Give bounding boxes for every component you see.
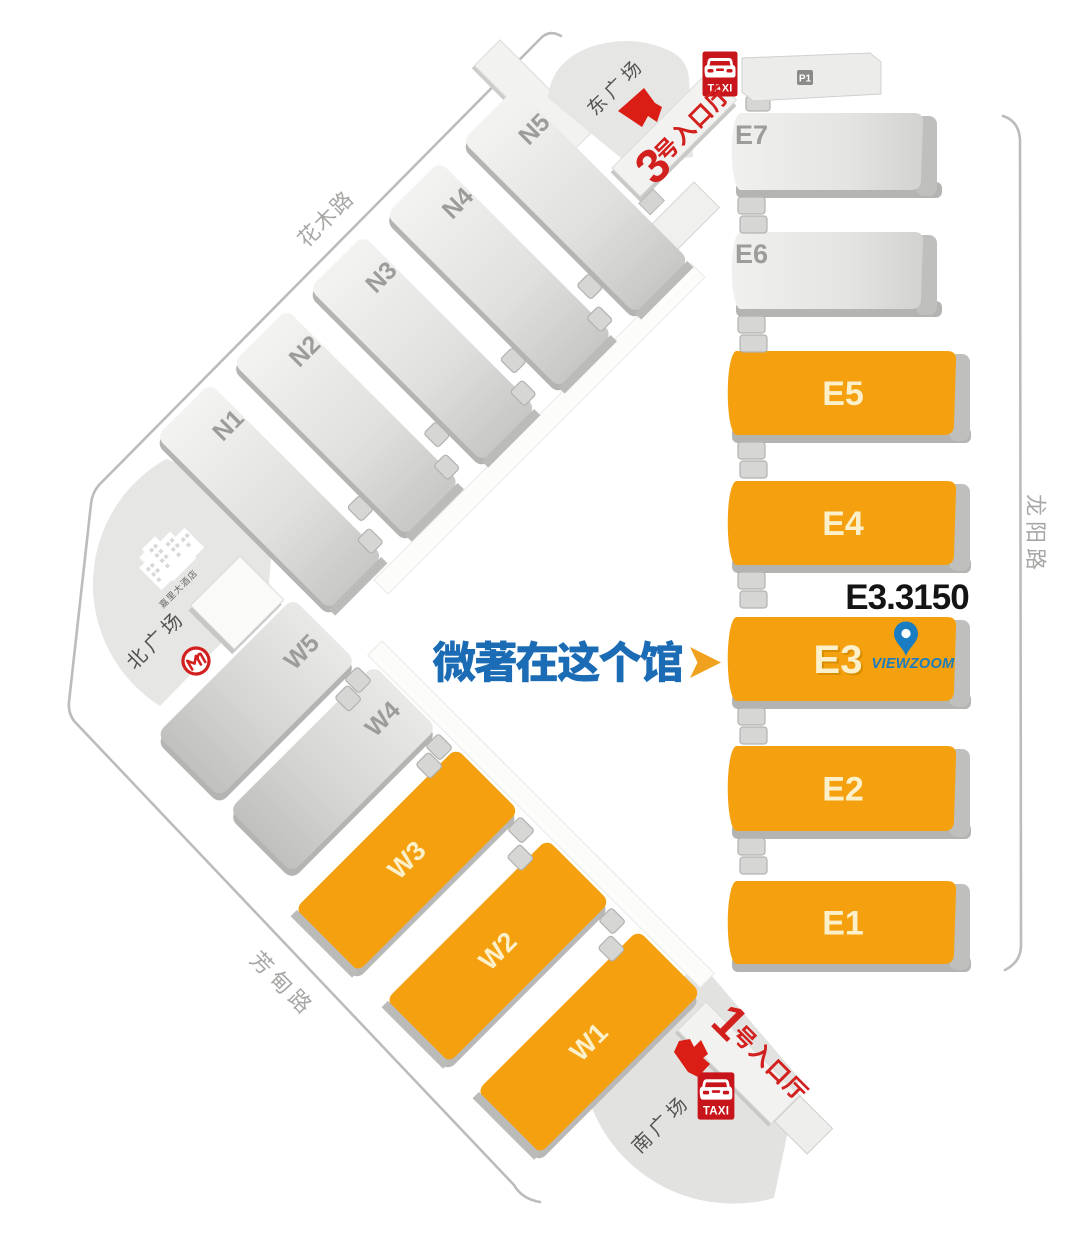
svg-text:E3: E3 <box>814 638 863 682</box>
svg-text:E3.3150: E3.3150 <box>845 578 969 617</box>
svg-text:VIEWZOOM: VIEWZOOM <box>872 656 956 672</box>
svg-text:E5: E5 <box>822 375 864 413</box>
svg-text:E2: E2 <box>822 771 864 809</box>
svg-text:E6: E6 <box>735 239 768 269</box>
svg-text:E7: E7 <box>735 120 768 150</box>
svg-text:E1: E1 <box>822 905 864 943</box>
svg-text:P1: P1 <box>799 74 812 85</box>
svg-text:TAXI: TAXI <box>703 1105 729 1117</box>
svg-text:E4: E4 <box>822 505 864 543</box>
